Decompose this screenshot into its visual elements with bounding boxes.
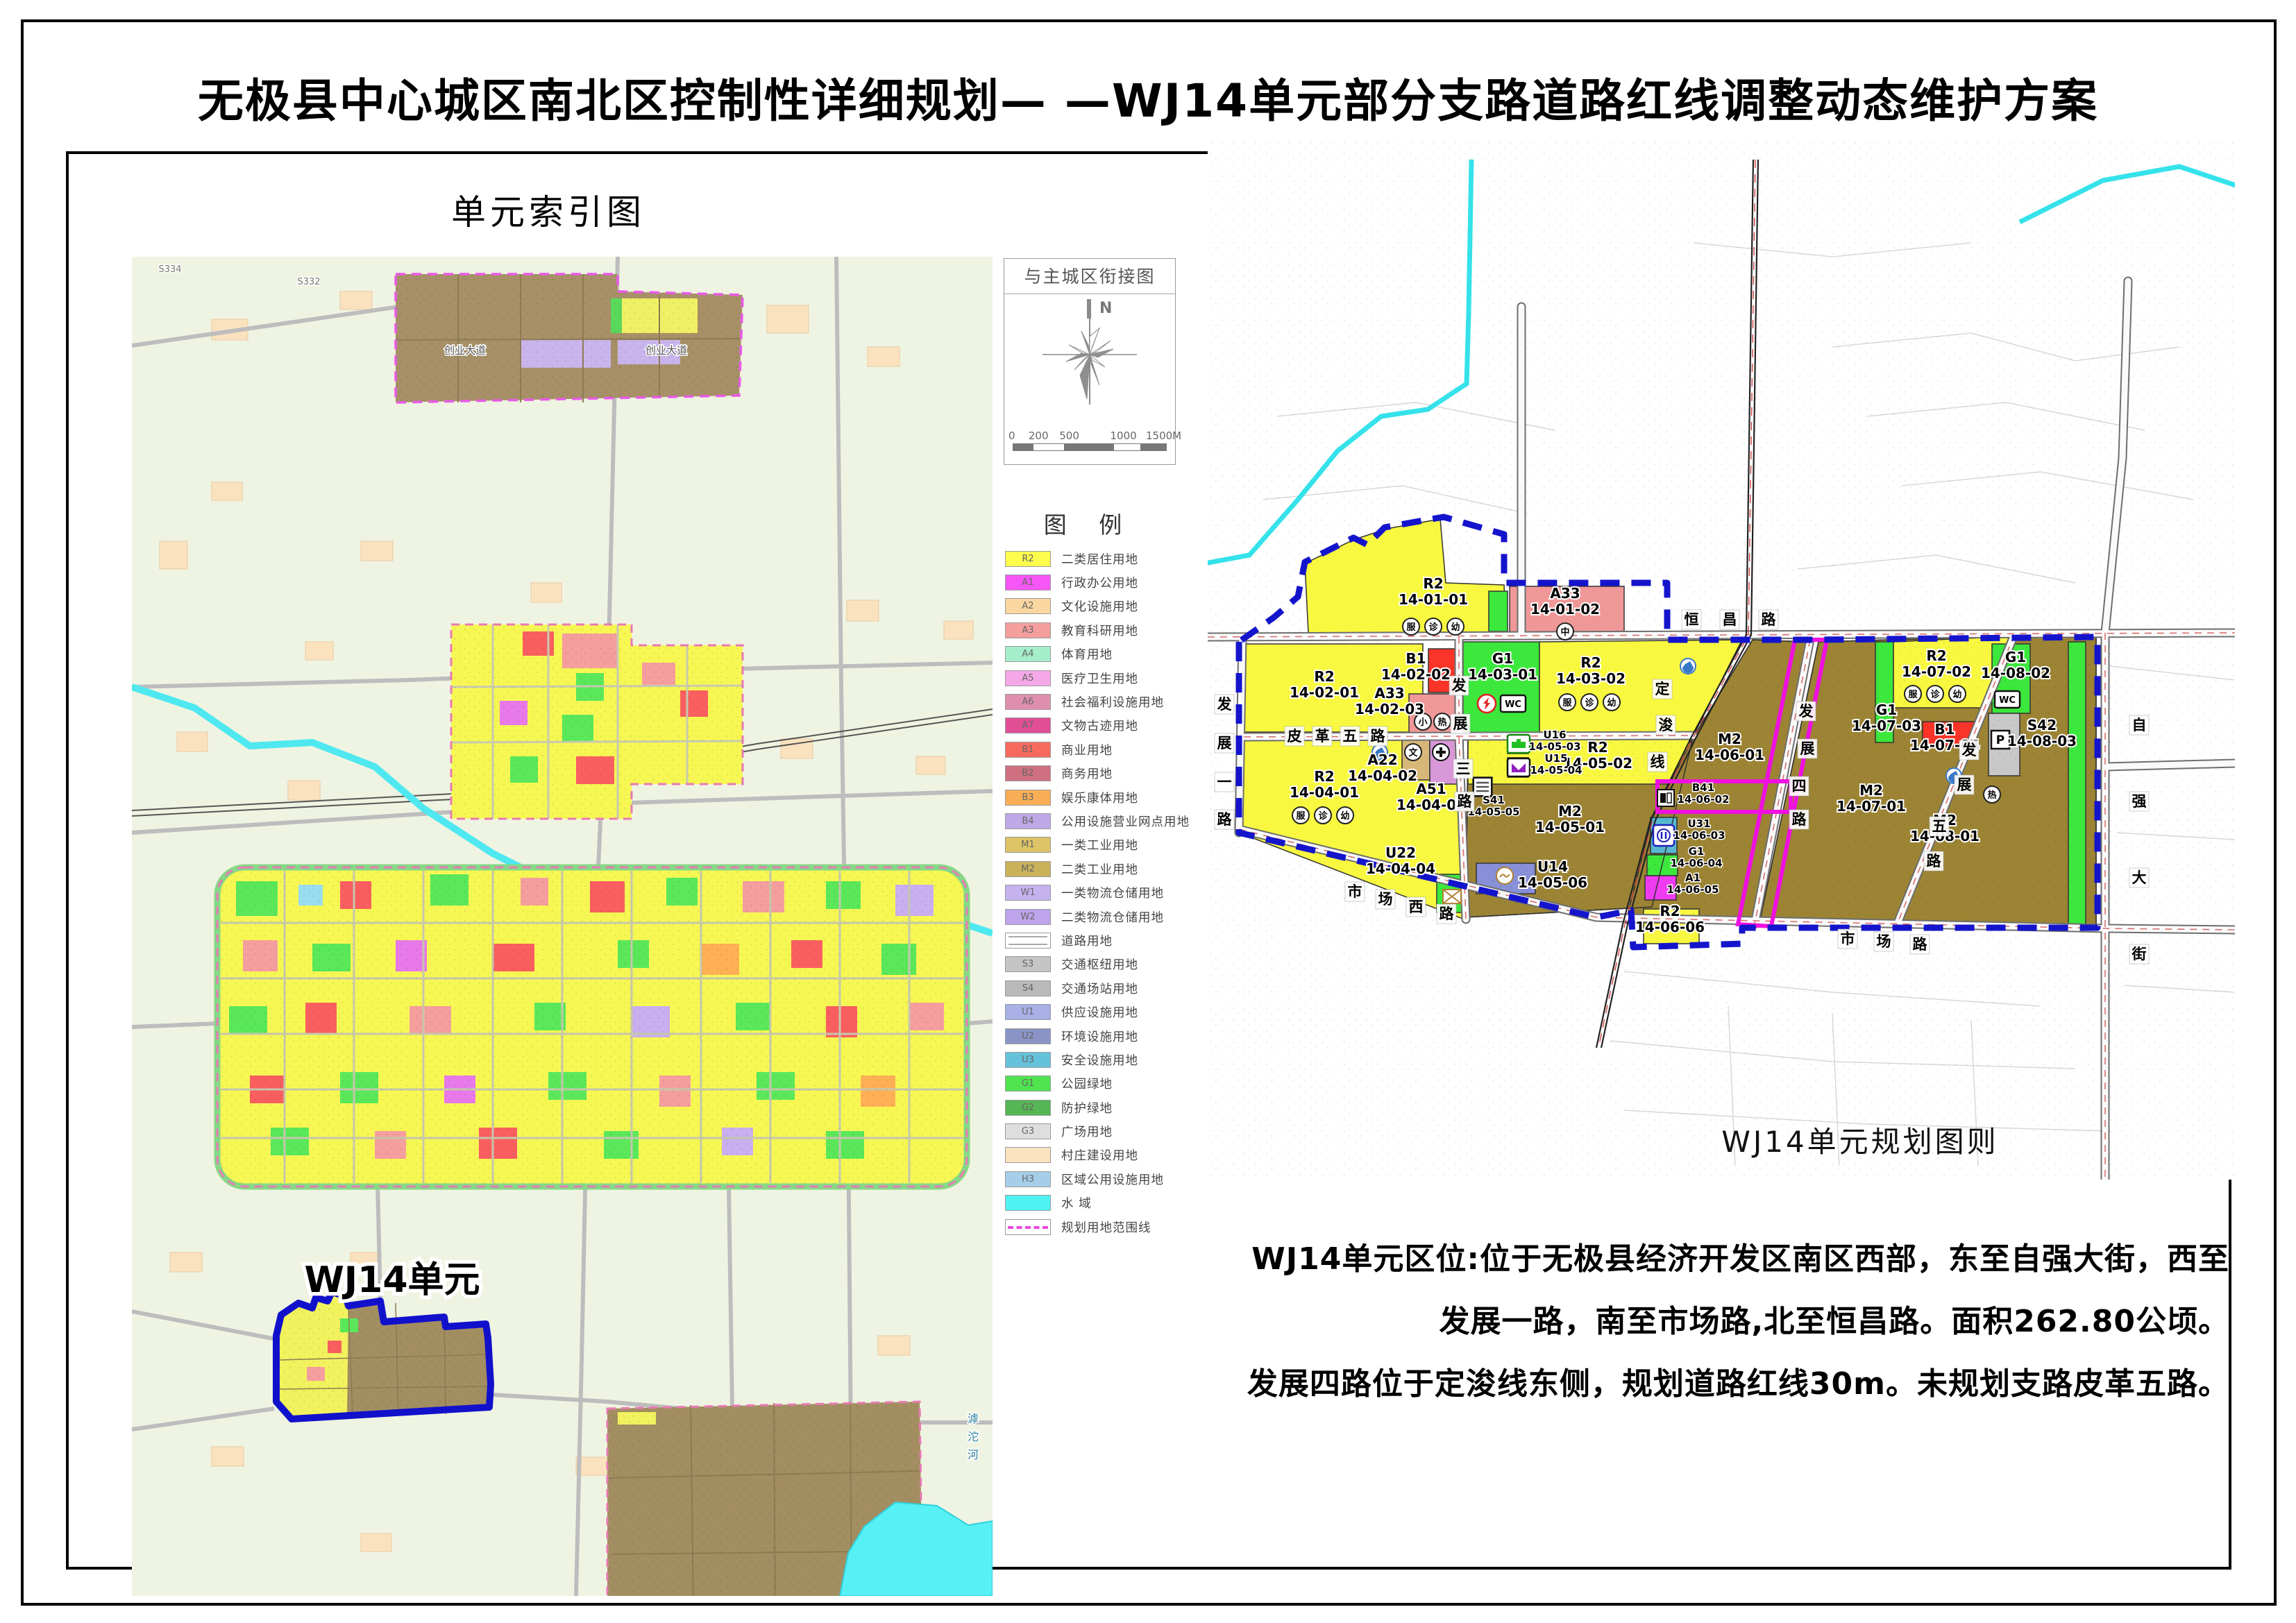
wc-icon: WC (1501, 695, 1526, 712)
legend-swatch: A6 (1005, 694, 1051, 710)
legend-item: A2文化设施用地 (1005, 595, 1179, 618)
svg-text:河: 河 (968, 1448, 979, 1461)
svg-text:14-03-02: 14-03-02 (1556, 670, 1626, 687)
legend-label: 公园绿地 (1061, 1075, 1113, 1092)
legend-item: A3教育科研用地 (1005, 618, 1179, 642)
u16-icon (1508, 735, 1530, 753)
legend-label: 文化设施用地 (1061, 597, 1138, 615)
central-city-zone (217, 867, 967, 1187)
legend-swatch: M2 (1005, 861, 1051, 877)
legend-swatch: B2 (1005, 765, 1051, 781)
svg-text:热: 热 (1437, 717, 1446, 728)
svg-text:14-05-05: 14-05-05 (1467, 806, 1519, 818)
svg-text:路: 路 (1762, 611, 1777, 628)
circ-icon: 热 (1434, 713, 1451, 730)
legend-label: 二类工业用地 (1061, 860, 1138, 878)
svg-text:S332: S332 (297, 277, 320, 287)
svg-text:服: 服 (1562, 698, 1572, 708)
legend-item: 村庄建设用地 (1005, 1144, 1179, 1167)
legend-item: G2防护绿地 (1005, 1096, 1179, 1119)
svg-text:发: 发 (1217, 696, 1233, 713)
legend-label: 娱乐康体用地 (1061, 789, 1138, 806)
xbox-icon (1443, 890, 1461, 903)
svg-text:幼: 幼 (1607, 697, 1616, 708)
svg-text:14-07-02: 14-07-02 (1902, 663, 1971, 680)
svg-text:西: 西 (1409, 899, 1424, 915)
svg-text:S41: S41 (1483, 794, 1505, 806)
legend-item: U2环境设施用地 (1005, 1024, 1179, 1048)
legend-label: 供应设施用地 (1061, 1003, 1138, 1021)
map-label-S332: S332 (297, 277, 320, 287)
svg-text:发: 发 (1961, 742, 1977, 758)
svg-text:发: 发 (1451, 677, 1467, 694)
wc-icon: WC (1995, 691, 2020, 708)
svg-text:路: 路 (1458, 793, 1473, 810)
svg-text:服: 服 (1296, 811, 1306, 822)
svg-text:沱: 沱 (968, 1430, 979, 1443)
svg-text:R2: R2 (1314, 768, 1334, 785)
scale-tick-label: 1500M (1146, 430, 1181, 442)
svg-text:五: 五 (1343, 728, 1358, 745)
legend-label: 广场用地 (1061, 1123, 1113, 1140)
svg-text:小: 小 (1418, 717, 1427, 728)
map-label-S334: S334 (158, 264, 181, 275)
svg-text:U14: U14 (1537, 858, 1568, 875)
svg-text:四: 四 (1792, 778, 1807, 794)
svg-text:P: P (1996, 733, 2004, 747)
svg-text:展: 展 (1217, 735, 1232, 751)
description-line-3: 发展四路位于定浚线东侧，规划道路红线30m。未规划支路皮革五路。 (1216, 1353, 2229, 1416)
legend-item: G3广场用地 (1005, 1119, 1179, 1143)
legend-label: 交通场站用地 (1061, 980, 1138, 997)
page-title: 无极县中心城区南北区控制性详细规划— —WJ14单元部分支路道路红线调整动态维护… (0, 64, 2296, 130)
circ-icon: 诊 (1581, 694, 1598, 711)
legend-label: 二类物流仓储用地 (1061, 908, 1164, 926)
svg-text:14-05-03: 14-05-03 (1528, 740, 1580, 753)
svg-text:R2: R2 (1423, 575, 1443, 592)
svg-text:A1: A1 (1685, 872, 1700, 884)
svg-text:场: 场 (1877, 933, 1891, 950)
legend-item: B4公用设施营业网点用地 (1005, 809, 1179, 833)
road-index-map: 服诊幼中小热WC服诊幼服诊幼文服诊幼WCP热 R214-01-01A3314-0… (1208, 139, 2235, 1180)
u15-icon (1508, 758, 1530, 776)
svg-text:G1: G1 (1876, 702, 1897, 718)
svg-text:G1: G1 (1492, 650, 1513, 667)
scale-tick-label: 200 (1029, 430, 1049, 442)
circ-icon: 幼 (1447, 618, 1464, 635)
svg-text:定: 定 (1655, 681, 1670, 697)
legend-label: 社会福利设施用地 (1061, 693, 1164, 711)
svg-text:14-06-04: 14-06-04 (1670, 857, 1722, 869)
circ-icon: 幼 (1949, 686, 1966, 702)
svg-text:M2: M2 (1718, 731, 1741, 747)
legend-swatch (1005, 1147, 1051, 1163)
legend-swatch: W2 (1005, 909, 1051, 925)
svg-text:M2: M2 (1558, 803, 1582, 819)
plan-document-page: 无极县中心城区南北区控制性详细规划— —WJ14单元部分支路道路红线调整动态维护… (0, 0, 2296, 1623)
legend-label: 防护绿地 (1061, 1099, 1113, 1116)
cross-icon (1433, 744, 1449, 760)
svg-text:恒: 恒 (1685, 611, 1699, 628)
legend-swatch: A2 (1005, 598, 1051, 614)
svg-text:文: 文 (1408, 747, 1418, 758)
svg-text:市: 市 (1841, 931, 1855, 947)
legend-item: A6社会福利设施用地 (1005, 690, 1179, 713)
svg-text:A33: A33 (1550, 585, 1580, 602)
legend-swatch: S4 (1005, 980, 1051, 996)
legend-label: 文物古迹用地 (1061, 717, 1138, 734)
svg-text:M2: M2 (1859, 782, 1883, 799)
legend-item: A5医疗卫生用地 (1005, 666, 1179, 690)
svg-text:14-06-06: 14-06-06 (1635, 919, 1705, 935)
north-industrial-zone (396, 274, 743, 402)
legend-label: 安全设施用地 (1061, 1051, 1138, 1069)
legend-label: 教育科研用地 (1061, 622, 1138, 639)
svg-text:14-06-02: 14-06-02 (1677, 793, 1729, 806)
svg-text:B1: B1 (1934, 721, 1955, 738)
svg-text:A22: A22 (1367, 751, 1397, 768)
svg-text:U22: U22 (1385, 844, 1416, 861)
svg-text:G1: G1 (1689, 845, 1705, 858)
legend-swatch: U3 (1005, 1052, 1051, 1068)
svg-text:14-03-01: 14-03-01 (1468, 666, 1537, 683)
svg-text:服: 服 (1908, 690, 1918, 700)
svg-text:A33: A33 (1374, 685, 1404, 702)
svg-text:发: 发 (1798, 703, 1814, 720)
svg-text:WC: WC (1505, 699, 1521, 710)
circ-icon: 服 (1403, 618, 1419, 635)
svg-text:WJ14单元: WJ14单元 (304, 1259, 480, 1301)
legend-item: W1一类物流仓储用地 (1005, 881, 1179, 904)
svg-text:服: 服 (1406, 622, 1416, 633)
svg-text:U15: U15 (1544, 752, 1567, 765)
map-label-创业大道: 创业大道 (444, 344, 486, 357)
svg-text:路: 路 (1217, 811, 1233, 828)
svg-text:U16: U16 (1543, 729, 1566, 741)
svg-text:街: 街 (2132, 946, 2147, 962)
legend-swatch: A1 (1005, 575, 1051, 590)
svg-text:14-04-04: 14-04-04 (1366, 860, 1435, 877)
svg-text:14-06-03: 14-06-03 (1673, 829, 1725, 842)
legend-label: 体育用地 (1061, 645, 1113, 663)
svg-text:14-05-04: 14-05-04 (1530, 764, 1582, 776)
legend-item: U1供应设施用地 (1005, 1000, 1179, 1023)
svg-text:14-01-01: 14-01-01 (1399, 591, 1468, 608)
svg-text:诊: 诊 (1585, 697, 1594, 708)
svg-text:强: 强 (2132, 793, 2147, 810)
inset-connection-map: 与主城区衔接图 N 020050010001500M (1004, 258, 1176, 465)
circ-icon: 诊 (1315, 807, 1331, 824)
circ-icon: 服 (1905, 686, 1921, 702)
svg-text:S42: S42 (2027, 717, 2057, 733)
legend-item: W2二类物流仓储用地 (1005, 905, 1179, 928)
circ-icon: 服 (1292, 807, 1309, 824)
legend-item: S4交通场站用地 (1005, 976, 1179, 1000)
pause-icon (1653, 825, 1674, 846)
circ-icon: 诊 (1927, 686, 1943, 702)
legend-swatch: U1 (1005, 1004, 1051, 1020)
legend-item: B2商务用地 (1005, 762, 1179, 785)
legend-swatch: A7 (1005, 717, 1051, 733)
legend-swatch: G1 (1005, 1076, 1051, 1091)
description-line-1: WJ14单元区位:位于无极县经济开发区南区西部，东至自强大街，西至 (1216, 1228, 2229, 1291)
legend-swatch: U2 (1005, 1028, 1051, 1044)
svg-text:热: 热 (1987, 790, 1996, 801)
legend-title: 图 例 (1004, 507, 1174, 540)
svg-text:14-02-01: 14-02-01 (1290, 684, 1359, 701)
svg-text:三: 三 (1456, 760, 1471, 777)
svg-text:14-08-03: 14-08-03 (2007, 733, 2077, 749)
road-label-恒昌路: 恒昌路 (1682, 610, 1778, 629)
legend-swatch: M1 (1005, 837, 1051, 853)
svg-text:展: 展 (1453, 715, 1468, 732)
legend-item: G1公园绿地 (1005, 1072, 1179, 1096)
svg-text:14-02-03: 14-02-03 (1355, 701, 1424, 717)
legend-label: 水 域 (1061, 1194, 1092, 1212)
legend-label: 村庄建设用地 (1061, 1146, 1138, 1164)
legend-item: B1商业用地 (1005, 738, 1179, 761)
svg-text:五: 五 (1932, 818, 1947, 835)
svg-text:诊: 诊 (1318, 810, 1328, 822)
scale-bar: 020050010001500M (1013, 430, 1167, 457)
svg-text:路: 路 (1913, 936, 1928, 953)
svg-text:大: 大 (2132, 869, 2147, 886)
svg-text:U31: U31 (1687, 817, 1710, 830)
legend-item: M1一类工业用地 (1005, 833, 1179, 857)
svg-text:诊: 诊 (1930, 689, 1940, 700)
legend-item: R2二类居住用地 (1005, 547, 1179, 570)
svg-text:革: 革 (1315, 728, 1330, 745)
svg-text:14-01-02: 14-01-02 (1530, 601, 1600, 618)
legend-label: 商务用地 (1061, 765, 1113, 782)
legend-swatch: G2 (1005, 1100, 1051, 1116)
legend-item: A4体育用地 (1005, 643, 1179, 666)
legend-swatch: W1 (1005, 885, 1051, 901)
bbox-icon (1657, 790, 1674, 806)
legend-item: M2二类工业用地 (1005, 857, 1179, 881)
legend-item: 规划用地范围线 (1005, 1215, 1179, 1239)
left-map-title: 单元索引图 (375, 185, 722, 235)
svg-text:线: 线 (1651, 754, 1665, 770)
legend-swatch: B3 (1005, 790, 1051, 806)
scale-tick-label: 0 (1008, 430, 1015, 442)
legend-item: H3区域公用设施用地 (1005, 1167, 1179, 1191)
svg-text:自: 自 (2132, 717, 2147, 733)
unit-index-map: S334S332创业大道创业大道WJ14单元滹沱河 (132, 257, 993, 1596)
svg-text:中: 中 (1560, 627, 1569, 638)
svg-text:14-04-02: 14-04-02 (1348, 767, 1417, 784)
svg-text:幼: 幼 (1340, 810, 1349, 822)
compass-rose-icon: N (1038, 296, 1142, 407)
legend-list: R2二类居住用地A1行政办公用地A2文化设施用地A3教育科研用地A4体育用地A5… (1005, 547, 1179, 1239)
svg-text:创业大道: 创业大道 (645, 344, 687, 357)
svg-text:市: 市 (1348, 883, 1362, 900)
legend-swatch (1005, 933, 1051, 949)
legend-swatch: R2 (1005, 551, 1051, 567)
legend-label: 行政办公用地 (1061, 574, 1138, 591)
unit-description: WJ14单元区位:位于无极县经济开发区南区西部，东至自强大街，西至 发展一路，南… (1216, 1228, 2229, 1416)
svg-text:WC: WC (1999, 695, 2016, 706)
map-label-创业大道: 创业大道 (645, 344, 687, 357)
legend-item: 水 域 (1005, 1191, 1179, 1215)
map-label-WJ14单元: WJ14单元 (304, 1259, 480, 1301)
svg-text:14-02-02: 14-02-02 (1381, 666, 1451, 683)
legend-swatch: A4 (1005, 646, 1051, 662)
svg-text:昌: 昌 (1723, 611, 1737, 628)
drop-icon (1680, 658, 1696, 674)
svg-text:一: 一 (1217, 774, 1232, 790)
svg-text:诊: 诊 (1428, 622, 1438, 633)
elec-icon (1478, 695, 1496, 713)
svg-text:展: 展 (1800, 740, 1815, 757)
svg-text:幼: 幼 (1952, 689, 1961, 700)
description-line-2: 发展一路，南至市场路,北至恒昌路。面积262.80公顷。 (1216, 1291, 2229, 1353)
svg-text:B1: B1 (1406, 650, 1426, 667)
scale-tick-label: 500 (1059, 430, 1079, 442)
legend-swatch (1005, 1195, 1051, 1211)
legend-label: 公用设施营业网点用地 (1061, 813, 1190, 830)
svg-text:皮: 皮 (1288, 728, 1302, 745)
circ-icon: 热 (1984, 786, 2000, 803)
legend-label: 二类居住用地 (1061, 550, 1138, 568)
legend-label: 道路用地 (1061, 932, 1113, 949)
legend-label: 一类物流仓储用地 (1061, 884, 1164, 901)
legend-item: A1行政办公用地 (1005, 570, 1179, 594)
circ-icon: 幼 (1603, 694, 1620, 711)
legend-label: 环境设施用地 (1061, 1028, 1138, 1045)
legend-swatch: B1 (1005, 742, 1051, 758)
legend-label: 规划用地范围线 (1061, 1218, 1151, 1236)
svg-text:路: 路 (1371, 728, 1386, 745)
legend-item: A7文物古迹用地 (1005, 714, 1179, 738)
svg-text:A51: A51 (1416, 781, 1446, 797)
svg-text:R2: R2 (1587, 739, 1607, 756)
svg-text:场: 场 (1378, 891, 1393, 908)
svg-text:G1: G1 (2005, 649, 2026, 665)
svg-text:创业大道: 创业大道 (444, 344, 486, 357)
svg-text:路: 路 (1792, 811, 1807, 828)
legend-label: 区域公用设施用地 (1061, 1171, 1164, 1188)
u14-icon (1496, 867, 1513, 884)
svg-text:滹: 滹 (968, 1412, 979, 1425)
svg-text:浚: 浚 (1659, 717, 1673, 733)
svg-text:14-05-06: 14-05-06 (1518, 874, 1587, 891)
north-label: N (1099, 300, 1112, 317)
svg-text:R2: R2 (1580, 654, 1601, 671)
svg-text:14-05-01: 14-05-01 (1535, 819, 1605, 835)
legend-label: 一类工业用地 (1061, 836, 1138, 853)
svg-text:路: 路 (1927, 853, 1942, 869)
circ-icon: 服 (1559, 694, 1576, 711)
legend-swatch: S3 (1005, 956, 1051, 972)
legend-item: B3娱乐康体用地 (1005, 785, 1179, 809)
legend-item: U3安全设施用地 (1005, 1048, 1179, 1071)
right-map-caption: WJ14单元规划图则 (1617, 1119, 2103, 1161)
legend-item: S3交通枢纽用地 (1005, 953, 1179, 976)
legend-swatch: H3 (1005, 1171, 1051, 1187)
circ-icon: 中 (1557, 623, 1573, 640)
svg-text:14-04-01: 14-04-01 (1290, 784, 1359, 801)
legend-item: 道路用地 (1005, 928, 1179, 952)
legend-swatch: B4 (1005, 813, 1051, 829)
svg-text:展: 展 (1957, 776, 1972, 793)
legend-label: 医疗卫生用地 (1061, 670, 1138, 687)
circ-icon: 诊 (1425, 618, 1442, 635)
svg-text:S334: S334 (158, 264, 181, 275)
svg-text:14-07-01: 14-07-01 (1837, 798, 1906, 815)
legend-swatch (1005, 1219, 1051, 1235)
circ-icon: 幼 (1337, 807, 1353, 824)
svg-text:14-06-05: 14-06-05 (1666, 883, 1719, 896)
svg-text:R2: R2 (1926, 647, 1946, 664)
circ-icon: 文 (1405, 744, 1421, 760)
scale-tick-label: 1000 (1111, 430, 1137, 442)
svg-text:14-06-01: 14-06-01 (1695, 747, 1764, 763)
legend-label: 商业用地 (1061, 741, 1113, 758)
svg-text:路: 路 (1440, 906, 1455, 922)
map-label-滹沱河: 滹沱河 (968, 1412, 979, 1461)
legend-swatch: A3 (1005, 622, 1051, 638)
svg-text:R2: R2 (1660, 903, 1680, 919)
svg-text:14-07-03: 14-07-03 (1852, 717, 1921, 734)
legend-label: 交通枢纽用地 (1061, 955, 1138, 973)
svg-text:幼: 幼 (1451, 622, 1460, 633)
legend-swatch: A5 (1005, 670, 1051, 686)
svg-text:R2: R2 (1314, 668, 1334, 685)
svg-text:14-08-02: 14-08-02 (1981, 665, 2050, 681)
legend-swatch: G3 (1005, 1123, 1051, 1139)
svg-text:B41: B41 (1692, 781, 1714, 794)
inset-title: 与主城区衔接图 (1004, 259, 1175, 294)
